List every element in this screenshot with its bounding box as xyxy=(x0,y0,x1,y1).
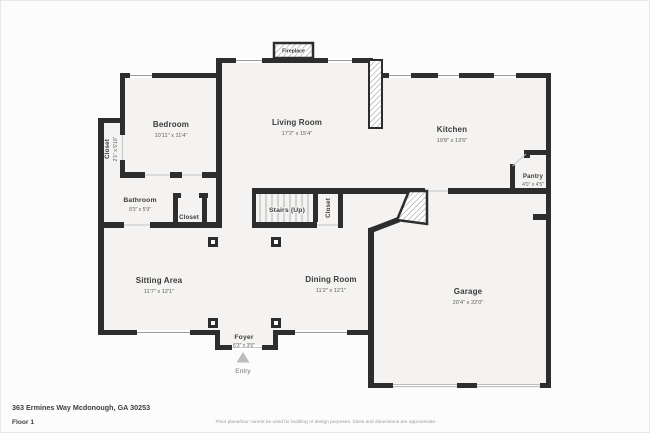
wall-closet-small-right xyxy=(202,196,207,228)
closet-left-dims: 2'1" x 5'10" xyxy=(113,136,119,161)
bedroom-label: Bedroom xyxy=(153,120,189,129)
column-post xyxy=(208,237,218,247)
wall-closet-small-left xyxy=(173,196,178,228)
garage-dims: 20'4" x 22'0" xyxy=(453,300,484,306)
dining-room-label: Dining Room xyxy=(305,275,356,284)
wall-bedroom-bottom xyxy=(120,172,222,178)
floor-living-dining xyxy=(222,58,373,335)
entry-label: Entry xyxy=(235,368,251,375)
wall-foyer-left xyxy=(215,330,220,350)
wall-bedroom-left xyxy=(120,73,125,178)
door-opening xyxy=(120,135,125,160)
door-opening xyxy=(145,172,170,178)
stairs-label: Stairs (Up) xyxy=(269,207,305,214)
window xyxy=(295,330,347,335)
closet-left-label: Closet xyxy=(104,139,111,159)
wall-stairs-left xyxy=(252,188,256,228)
wall-closet-stairs-right xyxy=(338,188,343,228)
sitting-area-dims: 11'7" x 12'1" xyxy=(144,289,174,295)
dining-room-dims: 11'2" x 12'1" xyxy=(316,288,346,294)
bathroom-label: Bathroom xyxy=(123,197,156,204)
door-opening xyxy=(425,188,448,194)
sitting-area-label: Sitting Area xyxy=(136,276,183,285)
door-opening xyxy=(317,222,338,228)
bedroom-dims: 10'11" x 11'4" xyxy=(155,133,188,139)
window xyxy=(494,73,516,78)
address-text: 363 Ermines Way Mcdonough, GA 30253 xyxy=(12,403,150,412)
window xyxy=(328,58,352,63)
bathroom-dims: 8'3" x 5'9" xyxy=(129,207,151,213)
fireplace-label: Fireplace xyxy=(282,49,305,55)
window xyxy=(438,73,459,78)
wall-bedroom-right xyxy=(216,58,222,228)
wall-garage-left xyxy=(368,228,374,388)
wall-right-outer xyxy=(546,73,551,388)
living-room-label: Living Room xyxy=(272,118,322,127)
disclaimer-text: Floor plans/tour cannot be used for buil… xyxy=(215,419,436,425)
kitchen-dims: 19'8" x 13'6" xyxy=(437,138,468,144)
garage-door xyxy=(393,383,457,388)
foyer-label: Foyer xyxy=(234,334,253,341)
kitchen-label: Kitchen xyxy=(437,125,467,134)
chimney-hatch xyxy=(369,60,382,128)
window xyxy=(137,330,190,335)
closet-small-label: Closet xyxy=(179,214,199,221)
wall-pantry-corner xyxy=(524,150,530,158)
garage-door xyxy=(477,383,540,388)
window xyxy=(236,58,262,63)
window xyxy=(130,73,152,78)
wall-foyer-right xyxy=(273,330,278,350)
floor-number-text: Floor 1 xyxy=(12,419,34,426)
foyer-dims: 6'3" x 3'5" xyxy=(233,343,255,349)
pantry-dims: 4'0" x 4'5" xyxy=(522,182,544,188)
wall-garage-top xyxy=(448,188,551,194)
wall-pantry-left xyxy=(510,164,515,194)
column-post xyxy=(208,318,218,328)
door-opening xyxy=(124,222,150,228)
closet-stairs-label: Closet xyxy=(325,198,332,218)
window xyxy=(389,73,411,78)
floorplan-page: Bedroom 10'11" x 11'4" Living Room 17'2"… xyxy=(0,0,650,433)
garage-label: Garage xyxy=(454,287,483,296)
column-post xyxy=(271,237,281,247)
pantry-label: Pantry xyxy=(523,173,544,180)
living-room-dims: 17'2" x 15'4" xyxy=(282,131,313,137)
column-post xyxy=(271,318,281,328)
floorplan-svg: Bedroom 10'11" x 11'4" Living Room 17'2"… xyxy=(0,0,650,433)
door-opening xyxy=(182,172,202,178)
